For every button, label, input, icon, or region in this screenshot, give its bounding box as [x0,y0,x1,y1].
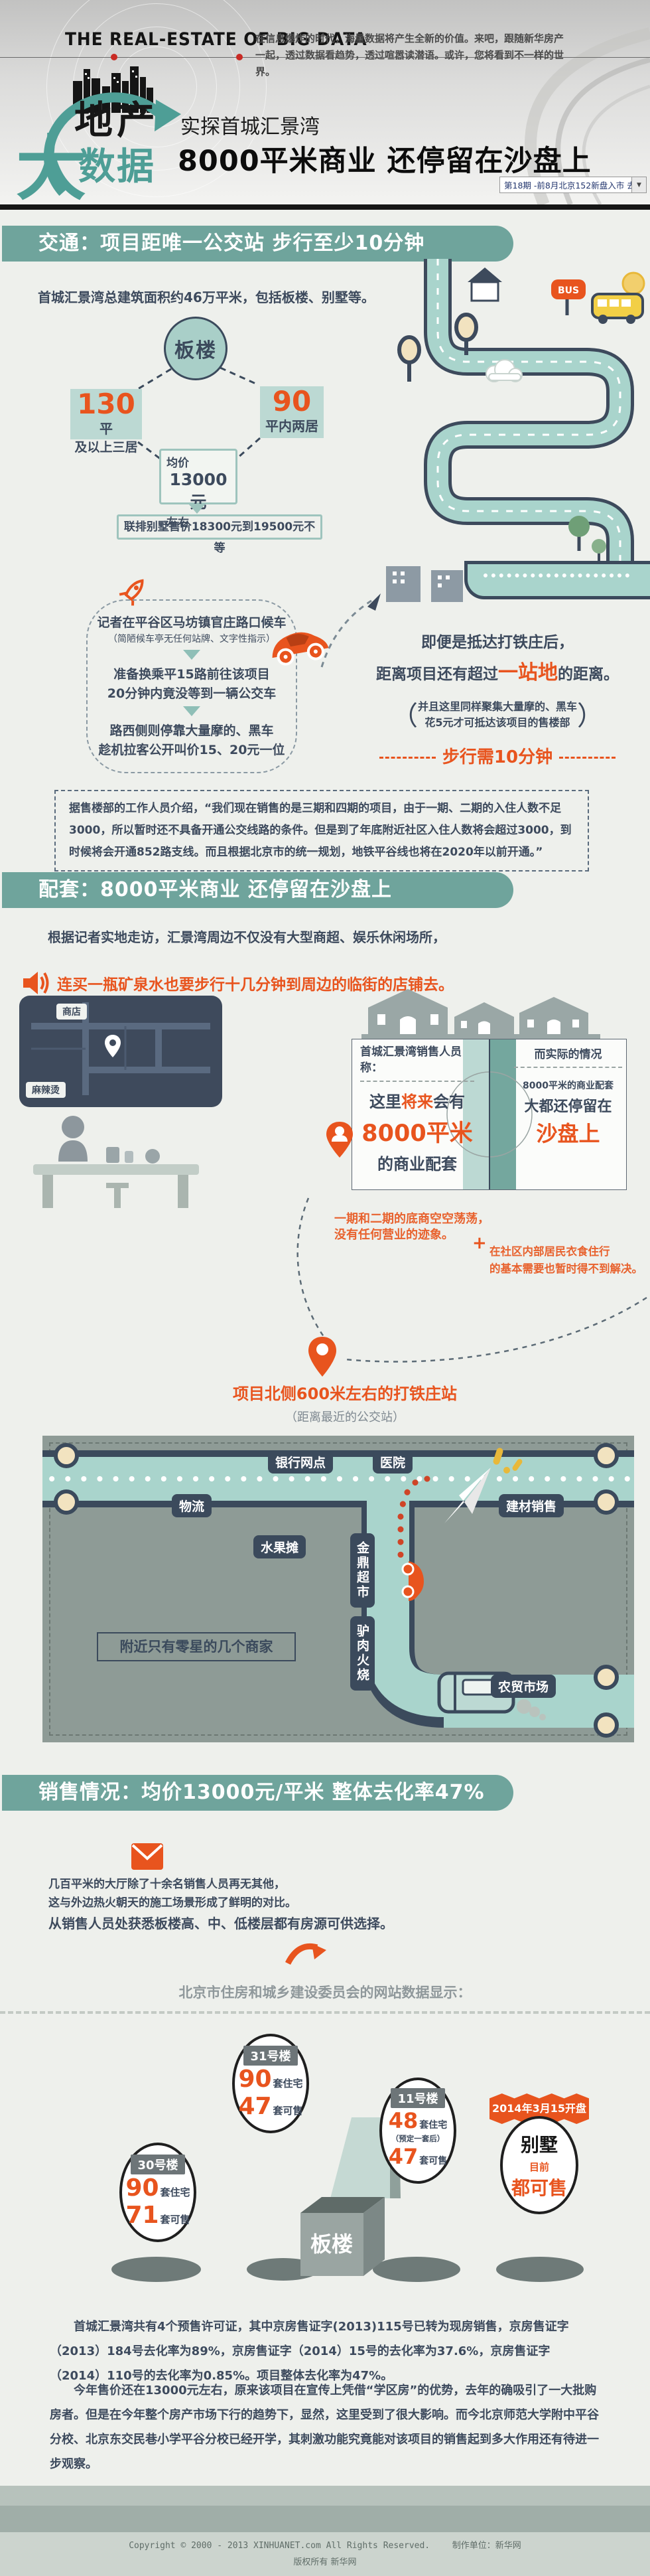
map-label-donkey: 驴肉火烧 [350,1616,375,1691]
person-pin-icon [324,1120,356,1159]
price-box-tail [188,504,206,514]
maker-text: 制作单位：新华网 [452,2541,521,2551]
infographic-page: THE REAL-ESTATE OF BIG DATA 在信息爆炸的时代，海量数… [0,0,650,2576]
price-box: 均价 13000元 左右 [159,449,237,504]
mini-map: 商店 麻辣烫 [19,996,222,1107]
map-pin-icon [104,1034,121,1058]
arrival-note1: 并且这里同样聚集大量摩的、黑车 [418,698,577,714]
claim-em: 将来 [401,1093,433,1111]
building-circle-11: 11号楼 48套住宅 （预定一套后） 47套可售 [379,2078,456,2184]
reality-column: 而实际的情况 8000平米的商业配套 大都还停留在 沙盘上 [514,1045,622,1148]
sales-office-quote: 据售楼部的工作人员介绍，“我们现在销售的是三期和四期的项目，由于一期、二期的入住… [54,790,589,871]
shadow [496,2257,584,2282]
road-dots [484,573,629,577]
empty-shops-note2: 没有任何营业的迹象。 [334,1225,454,1243]
unit-90-number: 90 [263,388,321,416]
location-pin-icon [306,1335,338,1378]
b11-note: （预定一套后） [391,2133,445,2144]
b11-n1: 48 [389,2108,419,2133]
red-dot [236,54,243,60]
b11-n2: 47 [389,2144,419,2169]
needs-note2: 的基本需要也暂时得不到解决。 [489,1260,643,1276]
arrival-line2-pre: 距离项目还有超过 [376,666,498,683]
claim-column: 首城汇景湾销售人员称： 这里将来会有 8000平米 的商业配套 [360,1045,474,1174]
claim-title: 首城汇景湾销售人员称： [360,1045,474,1077]
dash-decoration [379,757,436,759]
reality-line2: 大都还停留在 [514,1095,622,1116]
station-title: 项目北侧600米左右的打铁庄站 [199,1381,491,1404]
plus-icon: + [472,1233,487,1253]
arrival-road-band [464,561,650,599]
down-arrow-icon [183,706,200,716]
arrival-line2-em: 一站地 [498,661,558,684]
red-dot [111,54,117,60]
b11-u1: 套住宅 [419,2118,447,2131]
mini-map-stall-label: 麻辣烫 [26,1082,66,1098]
mini-map-shop-label: 商店 [56,1004,87,1020]
journey-step2a: 准备换乘平15路前往该项目 [88,664,296,682]
b31-u2: 套可售 [273,2103,303,2117]
kicker: 实探首城汇景湾 [180,110,320,139]
arrival-line2-post: 的距离。 [558,666,619,683]
map-label-fruit: 水果摊 [253,1535,306,1558]
price-label-top: 均价 [166,453,230,470]
footer-band-dark [0,2506,650,2532]
map-label-logistics: 物流 [172,1494,212,1517]
down-arrow-icon [183,650,200,660]
b30-u2: 套可售 [161,2212,190,2226]
map-label-bank: 银行网点 [268,1450,333,1474]
reality-big: 沙盘上 [514,1117,622,1148]
arrival-paren-note: （ 并且这里同样聚集大量摩的、黑车 花5元才可抵达该项目的售楼部 ） [355,694,640,733]
issue-dropdown-label: 第18期 -前8月北京152新盘入市 去化 [500,179,631,191]
journey-step2b: 20分钟内竟没等到一辆公交车 [88,684,296,702]
closing-paragraph-2: 今年售价还在13000元左右，原来该项目在宣传上凭借“学区房”的优势，去年的确吸… [50,2379,600,2477]
map-note-box: 附近只有零星的几个商家 [97,1632,296,1661]
unit-box-90: 90 平内两居 [260,386,324,438]
sales-p3: 从销售人员处获悉板楼高、中、低楼层都有房源可供选择。 [48,1913,393,1932]
paren-open: （ [391,694,418,733]
claim-mid: 会有 [433,1093,465,1111]
logo-word-da: 大 [16,112,86,204]
map-label-materials: 建材销售 [499,1494,564,1517]
envelope-icon [131,1843,164,1870]
journey-step1: 记者在平谷区马坊镇官庄路口候车 [88,613,296,631]
neighborhood-map: 银行网点 医院 物流 建材销售 水果摊 金鼎超市 驴肉火烧 农贸市场 附近只有零… [42,1436,634,1742]
winding-road-illustration: BUS [368,256,650,587]
header-intro: 在信息爆炸的时代，海量数据将产生全新的价值。来吧，跟随新华房产一起，透过数据看趋… [255,31,567,80]
villa-name: 别墅 [521,2131,558,2157]
comparison-panel: 首城汇景湾销售人员称： 这里将来会有 8000平米 的商业配套 而实际的情况 8… [352,1039,627,1190]
building-30-name: 30号楼 [131,2155,184,2174]
sales-p1: 几百平米的大厅除了十余名销售人员再无其他， [48,1874,285,1891]
unit-130-sub: 及以上三居 [73,437,139,455]
speaker-icon [22,969,51,997]
section2-heading: 配套：8000平米商业 还停留在沙盘上 [2,872,513,908]
school-bus-icon [592,294,643,324]
data-source-line: 北京市住房和城乡建设委员会的网站数据显示： [0,1982,650,2002]
unit-box-130: 130平 及以上三居 [70,389,142,439]
curved-arrow-icon [285,1941,328,1969]
building-circle-31: 31号楼 90套住宅 47套可售 [232,2034,309,2133]
b11-u2: 套可售 [419,2154,447,2167]
shadow [111,2257,201,2282]
journey-step3b: 趁机拉客公开叫价15、20元一位 [88,740,296,758]
building-circle-30: 30号楼 90套住宅 71套可售 [119,2143,196,2242]
b31-u1: 套住宅 [273,2076,303,2090]
map-label-supermarket: 金鼎超市 [350,1533,375,1608]
header: THE REAL-ESTATE OF BIG DATA 在信息爆炸的时代，海量数… [0,0,650,204]
food-counter-scene [27,1110,212,1209]
node-banlou-label: 板楼 [174,334,217,363]
dashed-divider [0,2011,650,2014]
bus-sign-label: BUS [558,285,579,296]
section1-intro: 首城汇景湾总建筑面积约46万平米，包括板楼、别墅等。 [38,287,375,306]
copyright-text: Copyright © 2000 - 2013 XINHUANET.com Al… [129,2541,430,2551]
station-block: 项目北侧600米左右的打铁庄站 （距离最近的公交站） [199,1381,491,1425]
building-circle-villa: 别墅 目前 都可售 [500,2116,578,2214]
issue-dropdown[interactable]: 第18期 -前8月北京152新盘入市 去化 ▼ [499,177,647,193]
sales-p2: 这与外边热火朝天的施工场景形成了鲜明的对比。 [48,1893,296,1910]
building-11-name: 11号楼 [391,2088,444,2108]
reality-line1: 8000平米的商业配套 [514,1079,622,1092]
arrival-line1: 即便是抵达打铁庄后， [355,629,640,652]
unit-130-unit: 平 [99,421,113,437]
rights-text: 版权所有 新华网 [0,2555,650,2567]
bus-sign: BUS [551,279,586,315]
unit-90-sub: 平内两居 [263,416,321,435]
reality-title: 而实际的情况 [514,1045,622,1061]
section2-intro: 根据记者实地走访，汇景湾周边不仅没有大型商超、娱乐休闲场所， [48,927,446,946]
empty-shops-note1: 一期和二期的底商空空荡荡， [334,1209,489,1227]
paren-close: ） [577,694,604,733]
villa-status: 都可售 [511,2174,567,2200]
building-31-name: 31号楼 [243,2046,297,2066]
villa-price-note: 联排别墅售价18300元到19500元不等 [117,514,322,540]
house-icon [468,267,502,301]
arrival-text: 即便是抵达打铁庄后， 距离项目还有超过一站地的距离。 （ 并且这里同样聚集大量摩… [355,629,640,768]
b30-u1: 套住宅 [161,2185,190,2199]
dash-decoration [559,757,616,759]
building-label: 板楼 [310,2232,353,2257]
claim-pre: 这里 [369,1093,401,1111]
sun-icon [623,273,644,294]
header-divider-bar [0,204,650,210]
section3-heading: 销售情况：均价13000元/平米 整体去化率47% [2,1775,513,1811]
closing-paragraph-1: 首城汇景湾共有4个预售许可证，其中京房售证字(2013)115号已转为现房销售，… [50,2315,600,2389]
needs-note1: 在社区内部居民衣食住行 [489,1243,610,1258]
b30-n1: 90 [125,2174,159,2202]
villa-sub: 目前 [529,2160,549,2174]
b31-n2: 47 [238,2093,271,2120]
map-label-hospital: 医院 [373,1450,413,1474]
houses-illustration [361,988,600,1041]
page-title: 8000平米商业 还停留在沙盘上 [178,138,592,179]
divider [360,1081,474,1082]
dropdown-arrow-icon[interactable]: ▼ [631,177,646,192]
walk-time: 步行需10分钟 [442,747,552,767]
b31-n1: 90 [238,2066,271,2093]
map-label-farmers: 农贸市场 [491,1675,556,1698]
journey-step3a: 路西侧则停靠大量摩的、黑车 [88,721,296,739]
footer-band-light [0,2486,650,2506]
claim-post: 的商业配套 [360,1151,474,1174]
unit-130-number: 130 [77,388,135,420]
claim-big: 8000平米 [360,1114,474,1148]
journey-bubble: 记者在平谷区马坊镇官庄路口候车 （简陋候车亭无任何站牌、文字性指示） 准备换乘平… [86,599,297,773]
divider [514,1067,622,1068]
gray-buildings-icon [385,561,471,602]
node-banlou: 板楼 [164,317,227,380]
arrival-note2: 花5元才可抵达该项目的售楼部 [418,714,577,729]
station-sub: （距离最近的公交站） [199,1408,491,1425]
logo-word-shuju: 数据 [78,137,155,190]
walk-time-row: 步行需10分钟 [355,743,640,768]
b30-n2: 71 [125,2202,159,2229]
footer: Copyright © 2000 - 2013 XINHUANET.com Al… [0,2532,650,2576]
